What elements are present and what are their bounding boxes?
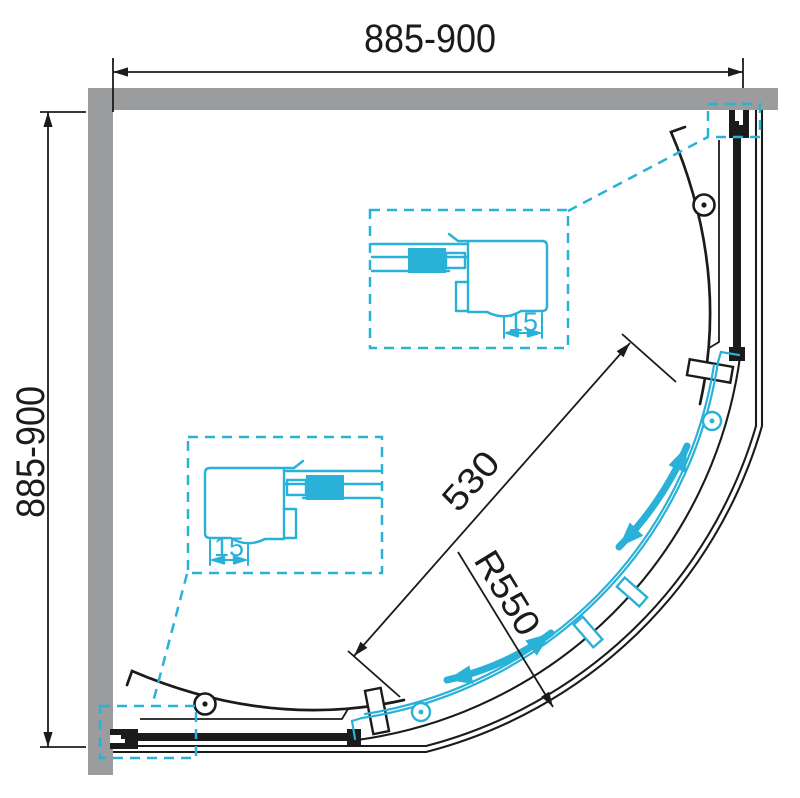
sliding-door-arc-inner xyxy=(365,365,714,714)
fixed-panel-right xyxy=(733,138,741,350)
open-door-bottom-left xyxy=(127,671,404,710)
fixed-glass-arc xyxy=(357,357,740,740)
wall-profile-top-right xyxy=(729,110,749,138)
walls xyxy=(88,88,778,775)
detail-lower-offset-label: 15 xyxy=(214,532,244,562)
door-handle-dot xyxy=(419,710,424,715)
sliding-door-arc-outer xyxy=(362,362,718,718)
detail-upper-offset-label: 15 xyxy=(508,307,538,337)
dimension-top-label: 885-900 xyxy=(364,17,496,61)
drawing-canvas: 885-900 885-900 xyxy=(0,0,800,798)
dimension-left-label: 885-900 xyxy=(9,386,53,518)
inner-frame-rim xyxy=(113,110,756,746)
extension-line xyxy=(622,334,676,382)
radius-dimension-label: R550 xyxy=(466,543,549,643)
door-handle-dot xyxy=(710,419,715,424)
drawing-page: 885-900 885-900 xyxy=(0,0,800,798)
door-knob-dot xyxy=(701,202,706,207)
entry-dimension-label: 530 xyxy=(433,442,507,519)
door-roller xyxy=(574,617,603,648)
door-knob-dot xyxy=(202,701,207,706)
wall-profile-bottom-left xyxy=(110,729,138,749)
fixed-panel-bottom xyxy=(138,733,350,741)
door-stop-bracket-right xyxy=(687,359,733,382)
outer-frame-rim xyxy=(113,110,762,752)
